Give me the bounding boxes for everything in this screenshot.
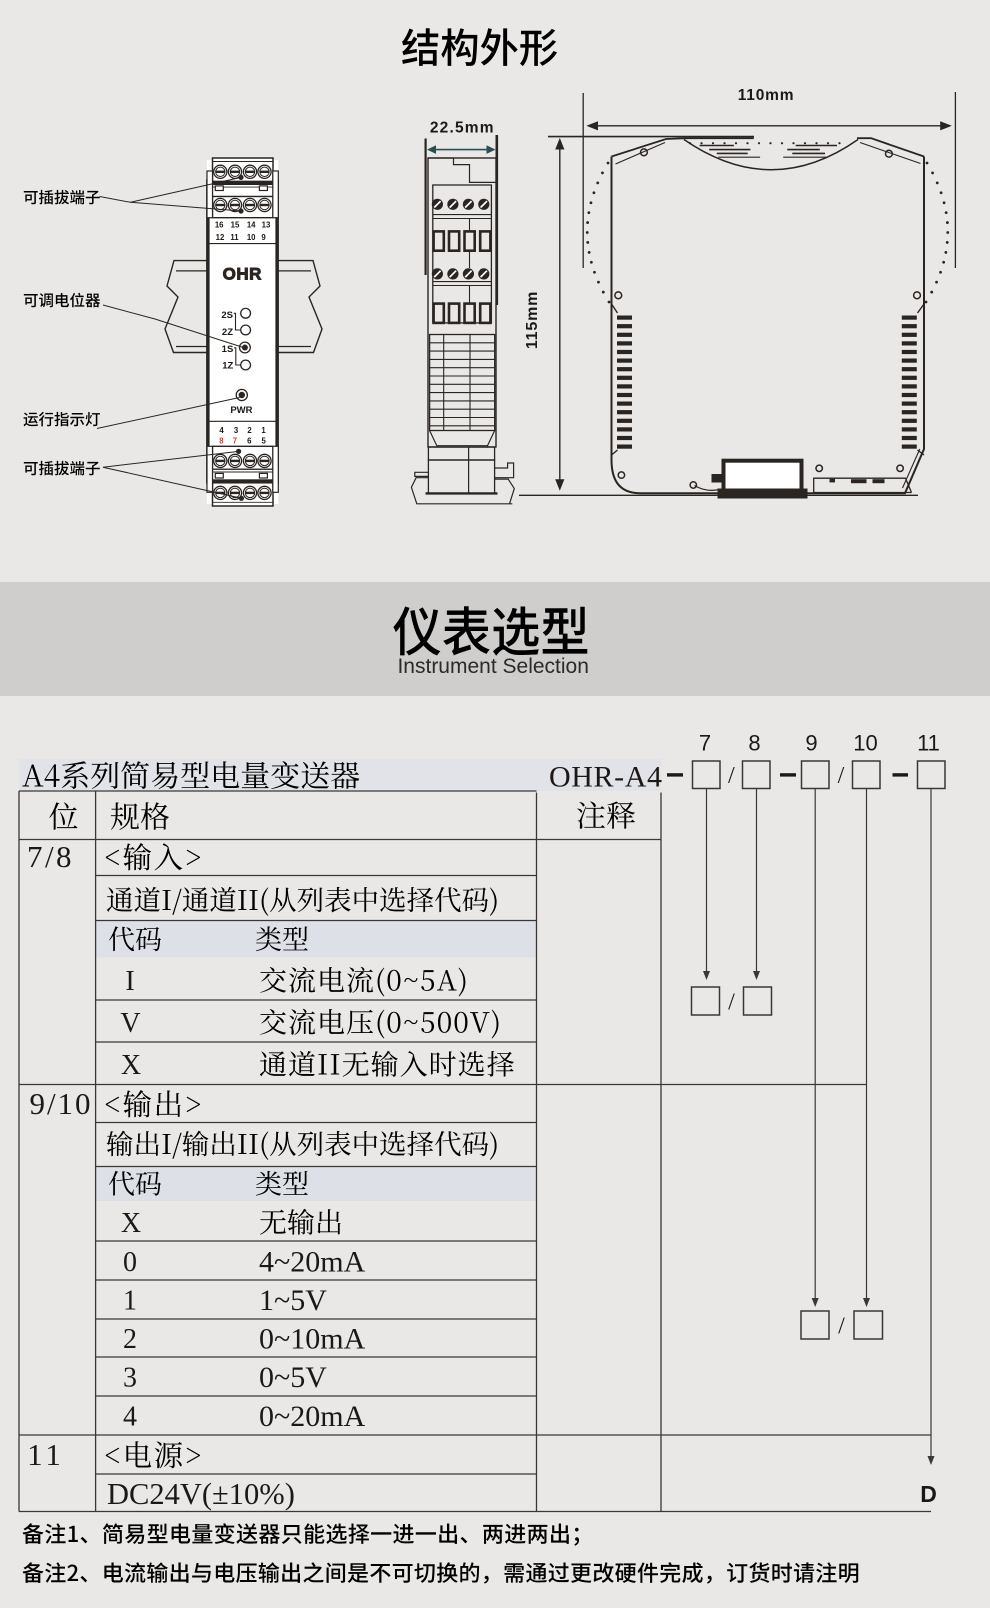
svg-text:14: 14 [247,221,256,230]
svg-text:OHR-A4: OHR-A4 [549,761,663,794]
svg-text:0: 0 [123,1247,137,1278]
svg-text:X: X [121,1208,141,1239]
svg-text:13: 13 [262,221,271,230]
svg-text:16: 16 [215,221,224,230]
svg-text:3: 3 [123,1363,137,1394]
svg-text:8: 8 [219,437,224,446]
svg-text:4: 4 [219,426,224,435]
svg-text:6: 6 [247,437,252,446]
svg-text:2S: 2S [221,310,233,321]
svg-text:X: X [121,1050,141,1081]
svg-text:/: / [728,763,735,789]
svg-text:110mm: 110mm [738,87,795,104]
svg-text:4: 4 [123,1402,137,1433]
svg-text:D: D [920,1481,937,1507]
svg-text:9: 9 [261,233,266,242]
svg-text:3: 3 [234,426,239,435]
svg-text:15: 15 [231,221,240,230]
svg-text:1~5V: 1~5V [259,1284,327,1317]
svg-text:11: 11 [27,1437,65,1472]
svg-text:2: 2 [123,1324,137,1355]
svg-text:V: V [120,1008,140,1039]
svg-text:11: 11 [230,233,239,242]
svg-text:1: 1 [123,1286,137,1317]
svg-text:2Z: 2Z [222,327,233,338]
svg-text:11: 11 [917,731,940,756]
svg-text:9/10: 9/10 [29,1086,92,1121]
svg-text:10: 10 [853,731,877,756]
svg-text:22.5mm: 22.5mm [430,120,495,137]
svg-text:4~20mA: 4~20mA [259,1246,366,1279]
svg-text:12: 12 [216,233,225,242]
svg-text:115mm: 115mm [524,291,541,349]
svg-text:0~20mA: 0~20mA [259,1400,366,1433]
svg-text:DC24V(±10%): DC24V(±10%) [107,1477,295,1511]
svg-text:I: I [125,966,134,997]
svg-text:/: / [728,990,735,1016]
svg-text:8: 8 [748,731,760,756]
svg-text:/: / [838,1314,845,1340]
svg-text:1Z: 1Z [222,360,233,371]
svg-text:7: 7 [233,437,237,446]
svg-text:0~5V: 0~5V [259,1361,327,1394]
svg-text:10: 10 [247,233,256,242]
svg-text:OHR: OHR [223,265,262,284]
svg-text:7/8: 7/8 [27,839,74,874]
svg-text:PWR: PWR [230,405,252,416]
svg-text:1: 1 [261,426,266,435]
svg-text:0~10mA: 0~10mA [259,1323,366,1356]
svg-text:1S: 1S [222,344,234,355]
svg-text:7: 7 [699,731,711,756]
svg-text:Instrument Selection: Instrument Selection [397,655,588,678]
svg-text:2: 2 [247,426,252,435]
svg-text:5: 5 [262,437,267,446]
svg-text:/: / [838,763,845,789]
svg-text:9: 9 [805,731,817,756]
